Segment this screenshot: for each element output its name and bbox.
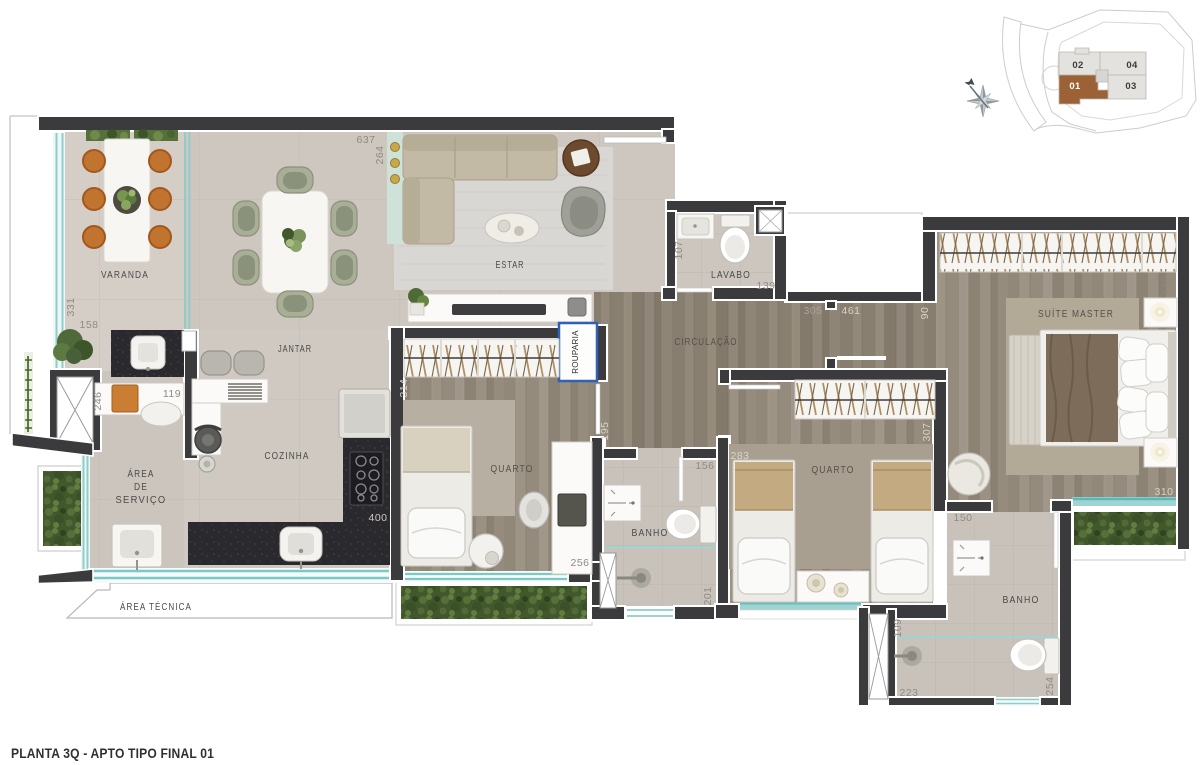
svg-text:246: 246 [92, 391, 104, 410]
svg-text:01: 01 [1069, 81, 1081, 92]
svg-text:156: 156 [695, 460, 714, 472]
svg-text:223: 223 [899, 687, 918, 699]
svg-text:COZINHA: COZINHA [265, 450, 310, 462]
svg-text:02: 02 [1072, 60, 1083, 71]
svg-text:JANTAR: JANTAR [278, 343, 312, 355]
svg-text:400: 400 [368, 512, 387, 524]
svg-text:SERVIÇO: SERVIÇO [116, 494, 167, 506]
svg-text:283: 283 [730, 450, 749, 462]
svg-text:SUÍTE MASTER: SUÍTE MASTER [1038, 307, 1114, 320]
svg-text:PLANTA 3Q - APTO TIPO FINAL 01: PLANTA 3Q - APTO TIPO FINAL 01 [11, 745, 214, 761]
svg-text:310: 310 [1154, 486, 1173, 498]
svg-text:254: 254 [1044, 676, 1056, 695]
svg-text:331: 331 [65, 297, 77, 316]
svg-text:119: 119 [163, 388, 181, 400]
svg-text:109: 109 [892, 618, 904, 637]
svg-text:305: 305 [803, 305, 822, 317]
svg-text:ÁREA TÉCNICA: ÁREA TÉCNICA [120, 600, 192, 613]
svg-text:LAVABO: LAVABO [711, 269, 751, 281]
svg-text:BANHO: BANHO [1003, 594, 1040, 606]
svg-text:ROUPARIA: ROUPARIA [571, 330, 580, 374]
svg-text:195: 195 [599, 421, 611, 440]
svg-text:ÁREA: ÁREA [128, 467, 155, 480]
svg-text:201: 201 [702, 586, 714, 605]
svg-text:314: 314 [398, 378, 410, 397]
svg-text:03: 03 [1125, 81, 1136, 92]
svg-text:107: 107 [673, 240, 685, 259]
svg-text:ESTAR: ESTAR [496, 259, 525, 271]
svg-text:90: 90 [919, 307, 931, 320]
svg-text:360: 360 [1161, 275, 1173, 294]
svg-text:BANHO: BANHO [632, 527, 669, 539]
svg-text:QUARTO: QUARTO [491, 463, 534, 475]
svg-text:307: 307 [921, 422, 933, 441]
svg-text:461: 461 [841, 305, 860, 317]
svg-text:256: 256 [570, 557, 589, 569]
svg-text:04: 04 [1126, 60, 1138, 71]
svg-text:DE: DE [134, 481, 148, 493]
svg-text:CIRCULAÇÃO: CIRCULAÇÃO [675, 335, 738, 348]
svg-text:QUARTO: QUARTO [812, 464, 855, 476]
svg-text:264: 264 [374, 145, 386, 164]
svg-text:158: 158 [79, 319, 98, 331]
svg-text:139: 139 [756, 280, 775, 292]
svg-text:VARANDA: VARANDA [101, 269, 149, 281]
svg-text:637: 637 [356, 134, 375, 146]
svg-text:150: 150 [953, 512, 972, 524]
